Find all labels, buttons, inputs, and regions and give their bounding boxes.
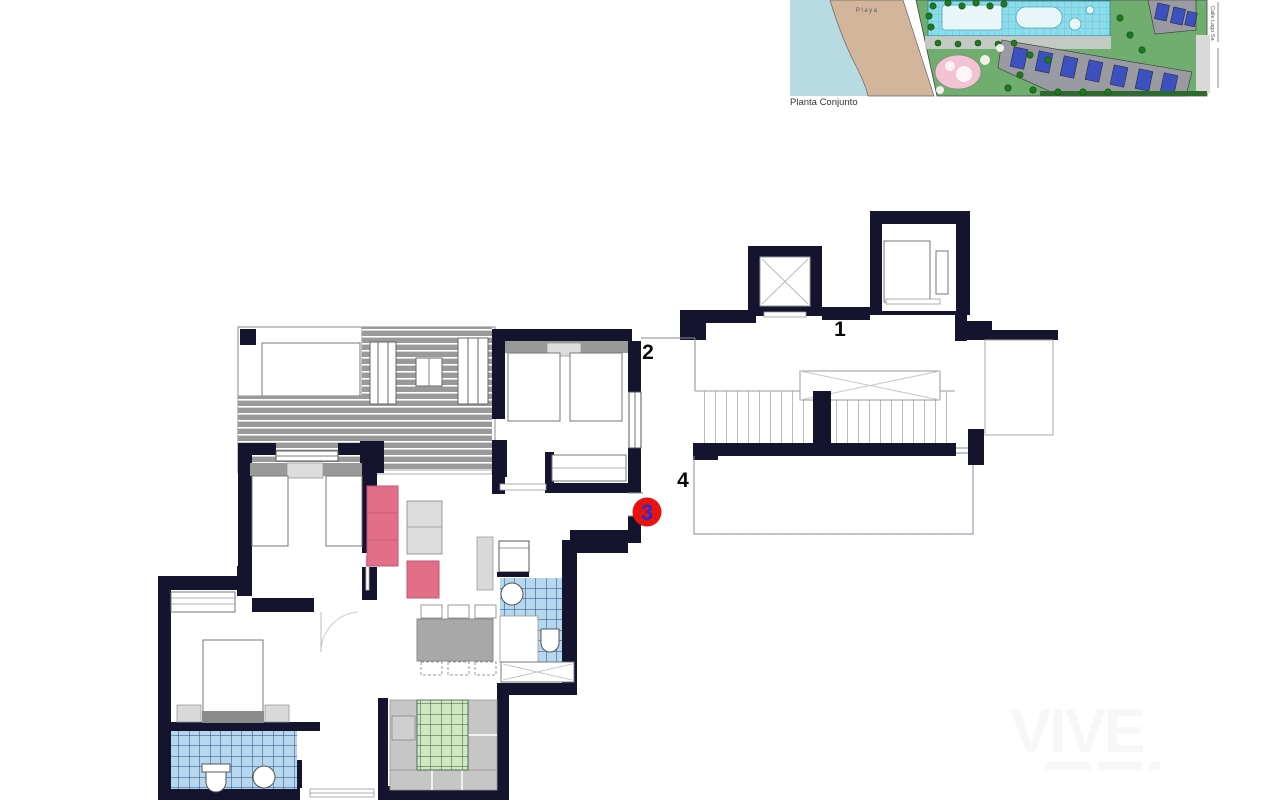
dining-table (417, 619, 493, 661)
bedroom-middle (250, 451, 369, 590)
single-bed-left (252, 476, 288, 546)
coffee-table (407, 501, 442, 554)
nightstand (287, 463, 323, 478)
washing-machine (499, 541, 529, 572)
unit-label-2[interactable]: 2 (642, 341, 654, 364)
nightstand-left (177, 705, 201, 722)
sofa (367, 486, 398, 566)
kitchen-floor-tiles (417, 700, 468, 770)
selected-unit-badge[interactable]: 3 (633, 498, 662, 527)
closet (171, 592, 235, 612)
tv-cabinet (477, 537, 493, 590)
staircase (695, 371, 955, 443)
floor-plan: 1 2 4 3 (158, 211, 1058, 800)
balcony-right (985, 340, 1053, 435)
ensuite-tiles (171, 731, 297, 789)
kitchen (390, 700, 497, 790)
elevator-2 (882, 224, 956, 311)
armchair (407, 561, 439, 598)
stairwell (628, 224, 1053, 534)
shelf-line (497, 572, 529, 577)
selected-unit-number: 3 (641, 500, 653, 525)
sink (253, 766, 275, 788)
watermark-logo: VIVE (1010, 697, 1160, 770)
street-label: Calle Lago Sa (1209, 6, 1215, 41)
terrace-corner-post (240, 329, 256, 345)
bathroom-ensuite (171, 731, 374, 797)
single-bed-right (570, 353, 622, 421)
floorplan-page: Calle Lago Sa Playa Planta Conjunto (0, 0, 1280, 800)
headboard (202, 711, 264, 723)
living-room (367, 486, 496, 675)
door-swing (321, 612, 358, 652)
single-bed-right (326, 476, 362, 546)
spa-pool (956, 66, 972, 82)
site-plan-inset: Calle Lago Sa Playa Planta Conjunto (790, 0, 1218, 108)
sink (501, 583, 523, 605)
unit-label-1[interactable]: 1 (834, 318, 846, 341)
spa-pool-small (945, 61, 955, 71)
door-leaf (500, 484, 546, 490)
double-bed (203, 640, 263, 713)
vanity (500, 616, 538, 662)
stair-stringer (813, 391, 831, 443)
site-path (1196, 35, 1210, 93)
bedroom-top (500, 341, 641, 490)
shower-tray (501, 662, 574, 682)
toilet (541, 629, 559, 652)
elevator-car (884, 241, 930, 302)
unit-label-4[interactable]: 4 (677, 469, 689, 492)
hedge-row (1040, 91, 1207, 96)
nightstand-right (265, 705, 289, 722)
planter-bed (262, 343, 360, 396)
beach-label: Playa (856, 8, 879, 14)
kitchen-appliance (392, 716, 415, 740)
site-plan-caption: Planta Conjunto (790, 97, 858, 108)
watermark-text: VIVE (1010, 697, 1143, 766)
floorplan-canvas: Calle Lago Sa Playa Planta Conjunto (0, 0, 1280, 800)
single-bed-left (508, 353, 560, 421)
